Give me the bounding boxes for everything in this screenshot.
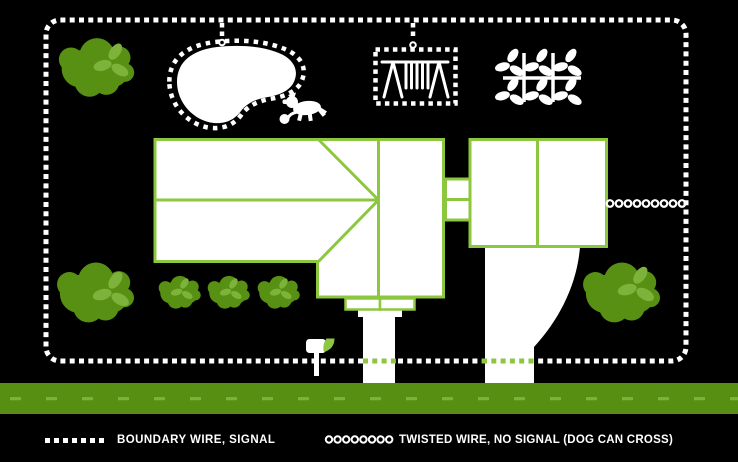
road [0,383,738,414]
pool-spur-twist [219,40,225,46]
bush-icon [57,263,134,323]
front-steps [358,311,402,318]
bush-icon [583,263,660,323]
dog-icon [280,93,328,125]
garden-plant-icon [552,76,583,107]
house [155,140,444,298]
garden-plant-icon [523,76,554,107]
porch [346,299,415,310]
pool-shape [177,46,296,123]
garden [494,47,583,107]
spur-wires [219,23,416,48]
bush-icon [59,38,134,97]
legend-boundary-label: BOUNDARY WIRE, SIGNAL [117,434,275,447]
mailbox-icon [306,339,335,377]
swing-set-icon [382,62,448,97]
legend-twisted-sample [326,436,393,442]
swing-spur-twist [410,42,416,48]
breezeway [446,179,471,220]
legend-twisted-label: TWISTED WIRE, NO SIGNAL (DOG CAN CROSS) [399,434,673,447]
bush-icon [159,276,201,309]
garden-plant-icon [494,47,525,78]
diagram-canvas [0,0,738,462]
bush-icon [208,276,250,309]
twisted-wire [607,200,686,207]
garden-plant-icon [552,47,583,78]
yard-diagram: BOUNDARY WIRE, SIGNAL TWISTED WIRE, NO S… [0,0,738,462]
garden-plant-icon [494,76,525,107]
garage [470,140,607,247]
garden-plant-icon [523,47,554,78]
walkway [363,314,395,383]
bush-icon [258,276,300,309]
swing-set-area [376,50,456,104]
house-footprint [155,140,444,298]
